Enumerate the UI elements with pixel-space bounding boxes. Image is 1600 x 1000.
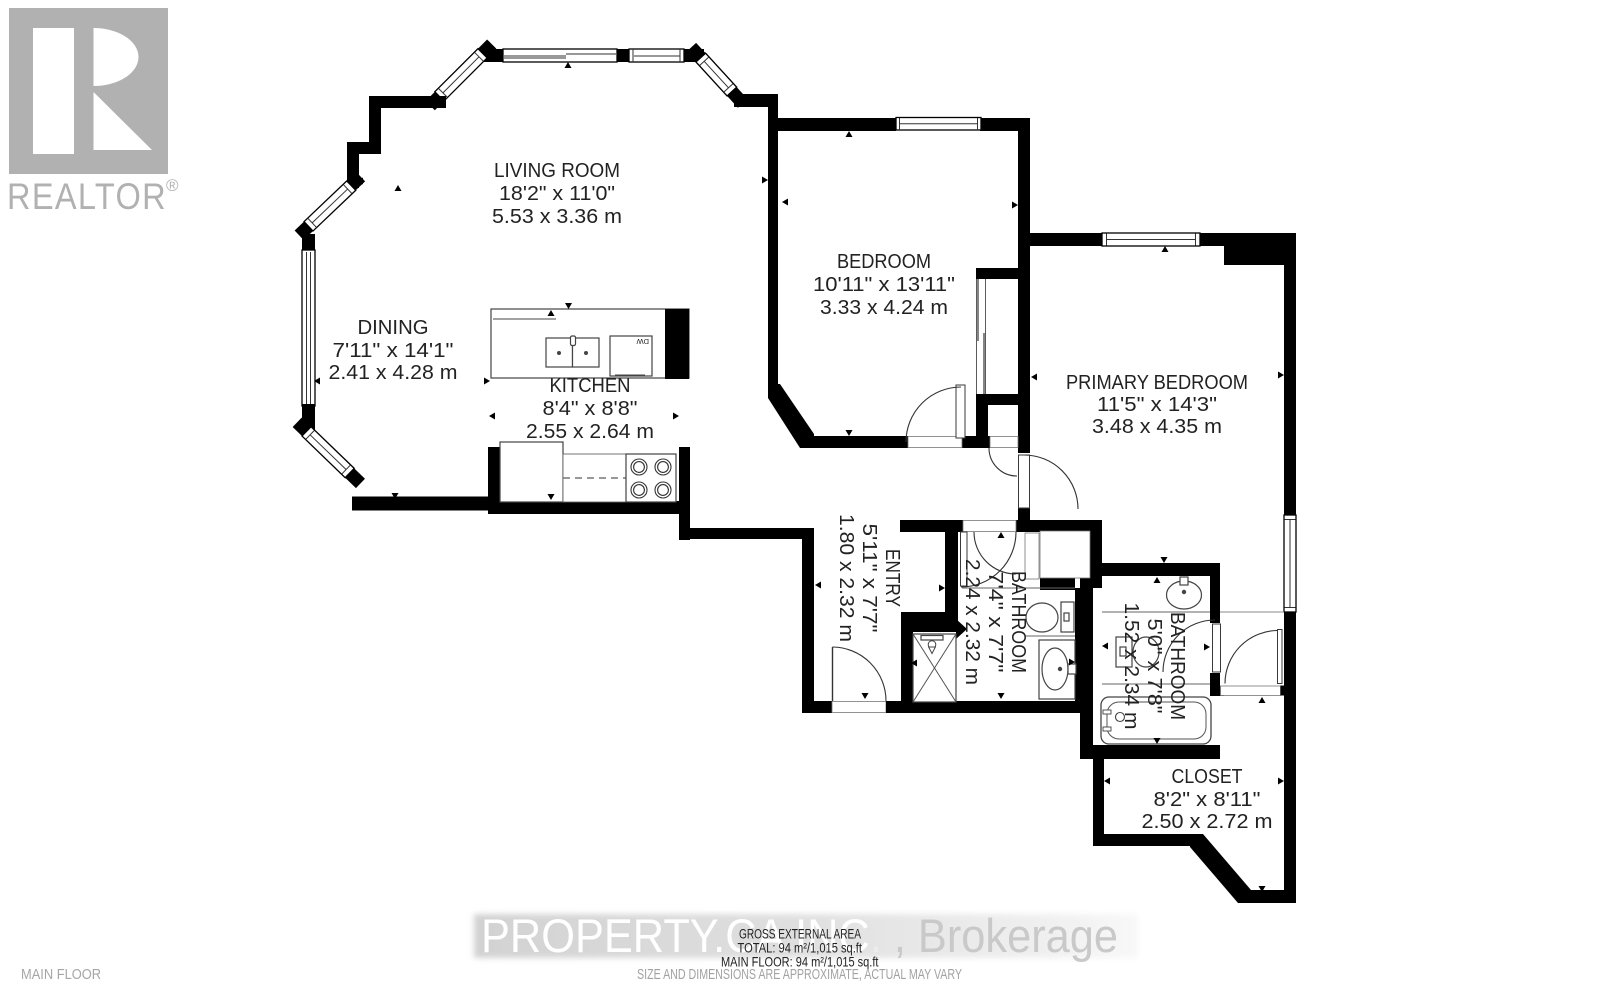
svg-text:8'4" x 8'8": 8'4" x 8'8" (543, 398, 638, 420)
svg-text:REALTOR: REALTOR (7, 176, 167, 217)
svg-text:DINING: DINING (358, 317, 429, 339)
svg-text:18'2" x 11'0": 18'2" x 11'0" (499, 183, 615, 205)
svg-text:GROSS EXTERNAL AREA: GROSS EXTERNAL AREA (739, 927, 861, 942)
svg-text:3.48 x 4.35 m: 3.48 x 4.35 m (1092, 416, 1222, 438)
svg-text:8'2" x 8'11": 8'2" x 8'11" (1154, 789, 1261, 811)
svg-text:5.53 x 3.36 m: 5.53 x 3.36 m (492, 206, 622, 228)
svg-text:®: ® (166, 176, 179, 195)
svg-text:5'11" x 7'7": 5'11" x 7'7" (858, 524, 880, 633)
svg-text:BATHROOM: BATHROOM (1166, 612, 1188, 720)
svg-text:1.80 x 2.32 m: 1.80 x 2.32 m (835, 514, 857, 642)
svg-text:CLOSET: CLOSET (1172, 766, 1243, 788)
svg-text:11'5" x 14'3": 11'5" x 14'3" (1097, 394, 1217, 416)
svg-text:5'0" x 7'8": 5'0" x 7'8" (1143, 619, 1165, 714)
svg-text:BATHROOM: BATHROOM (1007, 571, 1029, 673)
svg-text:2.55 x 2.64 m: 2.55 x 2.64 m (526, 421, 654, 443)
svg-text:7'4" x 7'7": 7'4" x 7'7" (984, 572, 1006, 673)
svg-text:LIVING ROOM: LIVING ROOM (494, 160, 620, 182)
svg-text:2.50 x 2.72 m: 2.50 x 2.72 m (1142, 811, 1273, 833)
svg-text:DW: DW (636, 337, 649, 346)
svg-text:KITCHEN: KITCHEN (550, 375, 631, 397)
svg-text:7'11" x 14'1": 7'11" x 14'1" (333, 340, 454, 362)
svg-text:PRIMARY BEDROOM: PRIMARY BEDROOM (1066, 372, 1248, 394)
svg-text:ENTRY: ENTRY (881, 549, 903, 607)
svg-text:2.24 x 2.32 m: 2.24 x 2.32 m (961, 559, 983, 685)
svg-text:1.52 x 2.34 m: 1.52 x 2.34 m (1120, 603, 1142, 730)
svg-text:MAIN FLOOR: MAIN FLOOR (21, 967, 101, 983)
svg-text:3.33 x 4.24 m: 3.33 x 4.24 m (820, 297, 948, 319)
svg-text:10'11" x 13'11": 10'11" x 13'11" (813, 274, 955, 296)
svg-text:BEDROOM: BEDROOM (837, 251, 931, 273)
svg-text:SIZE AND DIMENSIONS ARE APPROX: SIZE AND DIMENSIONS ARE APPROXIMATE, ACT… (637, 967, 962, 983)
svg-text:2.41 x 4.28 m: 2.41 x 4.28 m (329, 362, 458, 384)
